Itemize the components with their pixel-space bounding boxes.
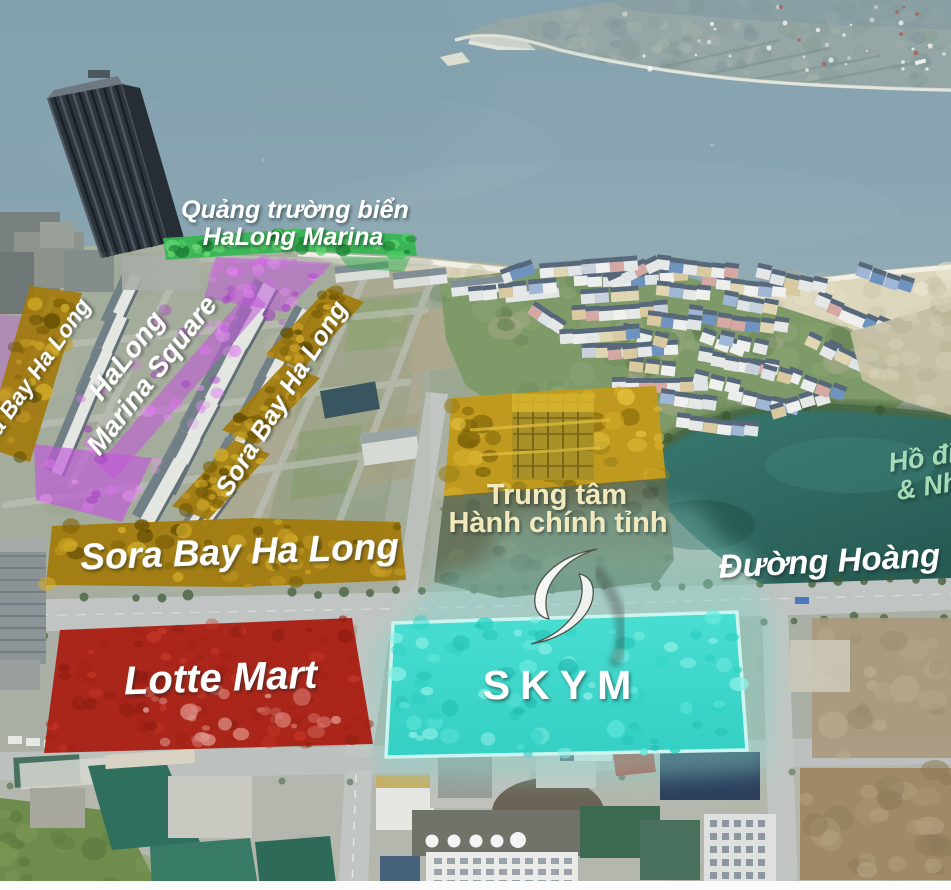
svg-text:HaLong Marina: HaLong Marina: [203, 223, 384, 251]
svg-text:Hành chính tỉnh: Hành chính tỉnh: [448, 507, 667, 539]
svg-text:SKYM: SKYM: [483, 662, 641, 708]
svg-text:Quảng trường biển: Quảng trường biển: [181, 196, 409, 224]
svg-text:Lotte Mart: Lotte Mart: [123, 653, 319, 704]
